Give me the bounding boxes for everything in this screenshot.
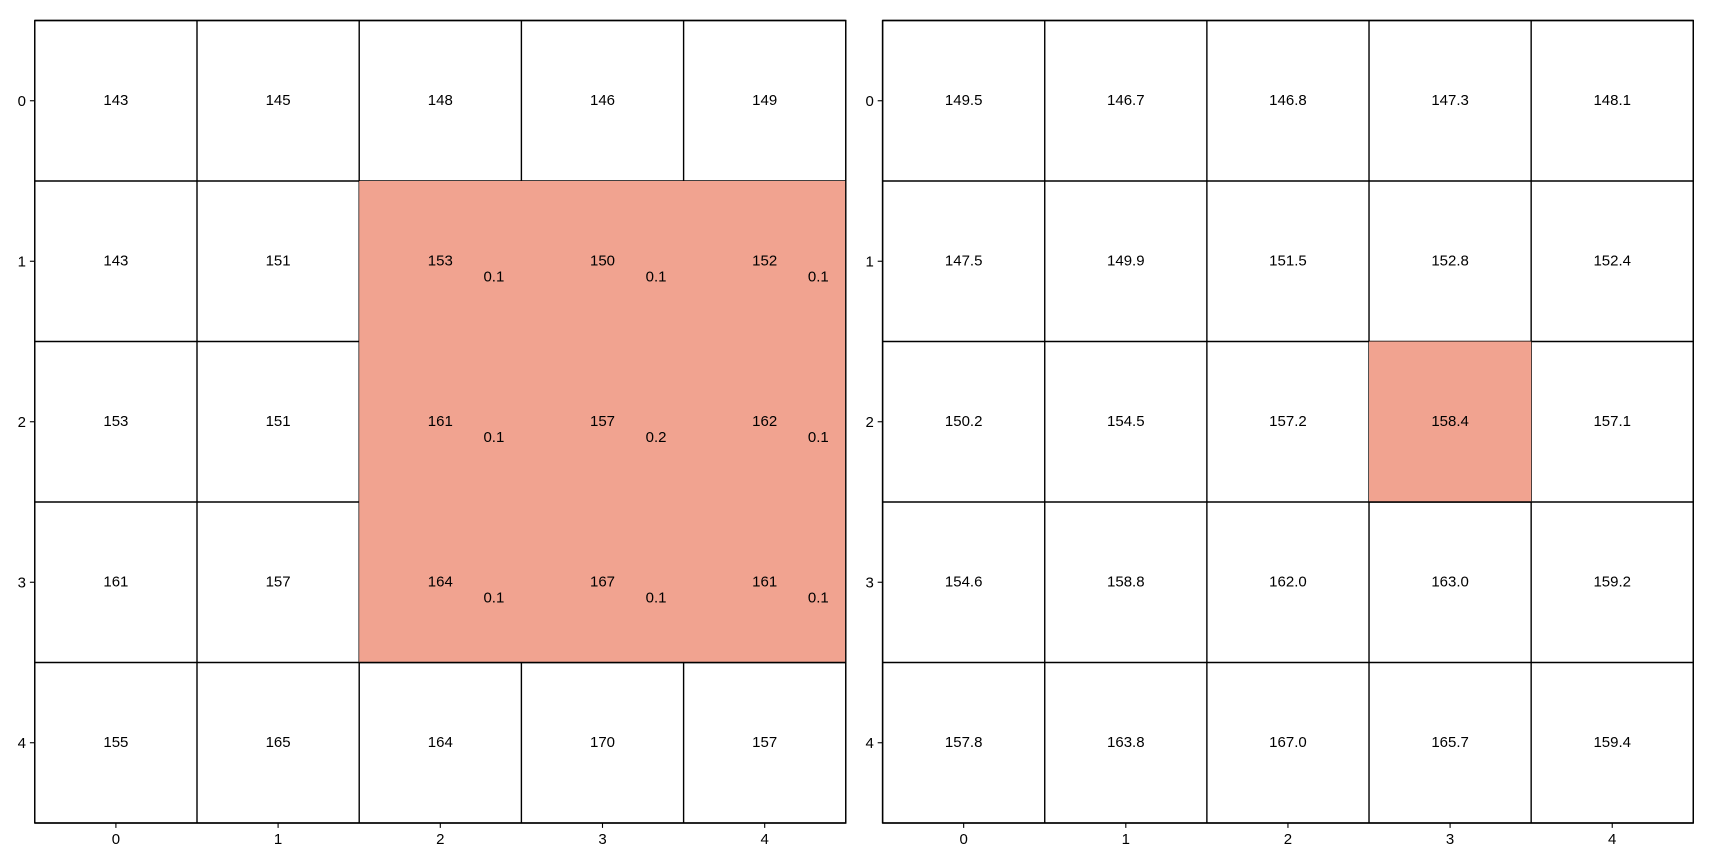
svg-text:155: 155 xyxy=(103,734,128,751)
svg-text:154.5: 154.5 xyxy=(1107,413,1145,430)
svg-text:148: 148 xyxy=(428,92,453,109)
svg-text:157.1: 157.1 xyxy=(1593,413,1631,430)
svg-text:167: 167 xyxy=(590,573,615,590)
svg-text:1: 1 xyxy=(274,831,282,848)
svg-text:2: 2 xyxy=(18,414,26,431)
svg-text:0.1: 0.1 xyxy=(483,268,504,285)
svg-text:0.1: 0.1 xyxy=(808,268,829,285)
svg-text:162.0: 162.0 xyxy=(1269,573,1307,590)
svg-text:161: 161 xyxy=(428,413,453,430)
svg-text:150.2: 150.2 xyxy=(945,413,983,430)
svg-text:164: 164 xyxy=(428,734,453,751)
svg-text:161: 161 xyxy=(752,573,777,590)
svg-text:143: 143 xyxy=(103,252,128,269)
svg-text:157: 157 xyxy=(266,573,291,590)
svg-text:149: 149 xyxy=(752,92,777,109)
svg-text:0: 0 xyxy=(959,831,967,848)
svg-text:154.6: 154.6 xyxy=(945,573,983,590)
svg-text:157.8: 157.8 xyxy=(945,734,983,751)
svg-text:159.2: 159.2 xyxy=(1593,573,1631,590)
svg-text:163.0: 163.0 xyxy=(1431,573,1469,590)
svg-text:2: 2 xyxy=(865,414,873,431)
svg-text:0: 0 xyxy=(18,93,26,110)
svg-text:3: 3 xyxy=(598,831,606,848)
svg-text:0.1: 0.1 xyxy=(646,589,667,606)
svg-text:0.1: 0.1 xyxy=(808,429,829,446)
svg-text:0: 0 xyxy=(112,831,120,848)
svg-text:164: 164 xyxy=(428,573,453,590)
svg-text:165.7: 165.7 xyxy=(1431,734,1469,751)
svg-text:157: 157 xyxy=(752,734,777,751)
svg-text:149.9: 149.9 xyxy=(1107,252,1145,269)
svg-text:152.8: 152.8 xyxy=(1431,252,1469,269)
svg-text:4: 4 xyxy=(865,735,873,752)
svg-text:1: 1 xyxy=(865,253,873,270)
svg-text:0.2: 0.2 xyxy=(646,429,667,446)
svg-text:158.8: 158.8 xyxy=(1107,573,1145,590)
svg-text:3: 3 xyxy=(865,574,873,591)
svg-text:4: 4 xyxy=(18,735,26,752)
svg-text:0.1: 0.1 xyxy=(483,589,504,606)
svg-text:2: 2 xyxy=(1284,831,1292,848)
svg-text:0.1: 0.1 xyxy=(808,589,829,606)
svg-text:162: 162 xyxy=(752,413,777,430)
svg-text:1: 1 xyxy=(18,253,26,270)
svg-text:148.1: 148.1 xyxy=(1593,92,1631,109)
svg-text:1: 1 xyxy=(1122,831,1130,848)
svg-text:143: 143 xyxy=(103,92,128,109)
svg-text:3: 3 xyxy=(18,574,26,591)
svg-text:4: 4 xyxy=(1608,831,1616,848)
svg-text:145: 145 xyxy=(266,92,291,109)
svg-text:150: 150 xyxy=(590,252,615,269)
svg-text:146.8: 146.8 xyxy=(1269,92,1307,109)
svg-text:152: 152 xyxy=(752,252,777,269)
svg-text:152.4: 152.4 xyxy=(1593,252,1631,269)
svg-text:157: 157 xyxy=(590,413,615,430)
svg-text:163.8: 163.8 xyxy=(1107,734,1145,751)
svg-text:153: 153 xyxy=(103,413,128,430)
svg-text:151: 151 xyxy=(266,252,291,269)
svg-text:161: 161 xyxy=(103,573,128,590)
svg-text:170: 170 xyxy=(590,734,615,751)
svg-text:167.0: 167.0 xyxy=(1269,734,1307,751)
svg-text:158.4: 158.4 xyxy=(1431,413,1469,430)
svg-text:4: 4 xyxy=(761,831,769,848)
svg-text:159.4: 159.4 xyxy=(1593,734,1631,751)
svg-text:0.1: 0.1 xyxy=(646,268,667,285)
svg-text:153: 153 xyxy=(428,252,453,269)
svg-text:146: 146 xyxy=(590,92,615,109)
svg-text:147.3: 147.3 xyxy=(1431,92,1469,109)
svg-text:149.5: 149.5 xyxy=(945,92,983,109)
svg-text:3: 3 xyxy=(1446,831,1454,848)
svg-text:151.5: 151.5 xyxy=(1269,252,1307,269)
svg-text:165: 165 xyxy=(266,734,291,751)
svg-text:147.5: 147.5 xyxy=(945,252,983,269)
svg-text:146.7: 146.7 xyxy=(1107,92,1145,109)
svg-text:0: 0 xyxy=(865,93,873,110)
svg-text:2: 2 xyxy=(436,831,444,848)
svg-text:157.2: 157.2 xyxy=(1269,413,1307,430)
svg-text:151: 151 xyxy=(266,413,291,430)
svg-text:0.1: 0.1 xyxy=(483,429,504,446)
